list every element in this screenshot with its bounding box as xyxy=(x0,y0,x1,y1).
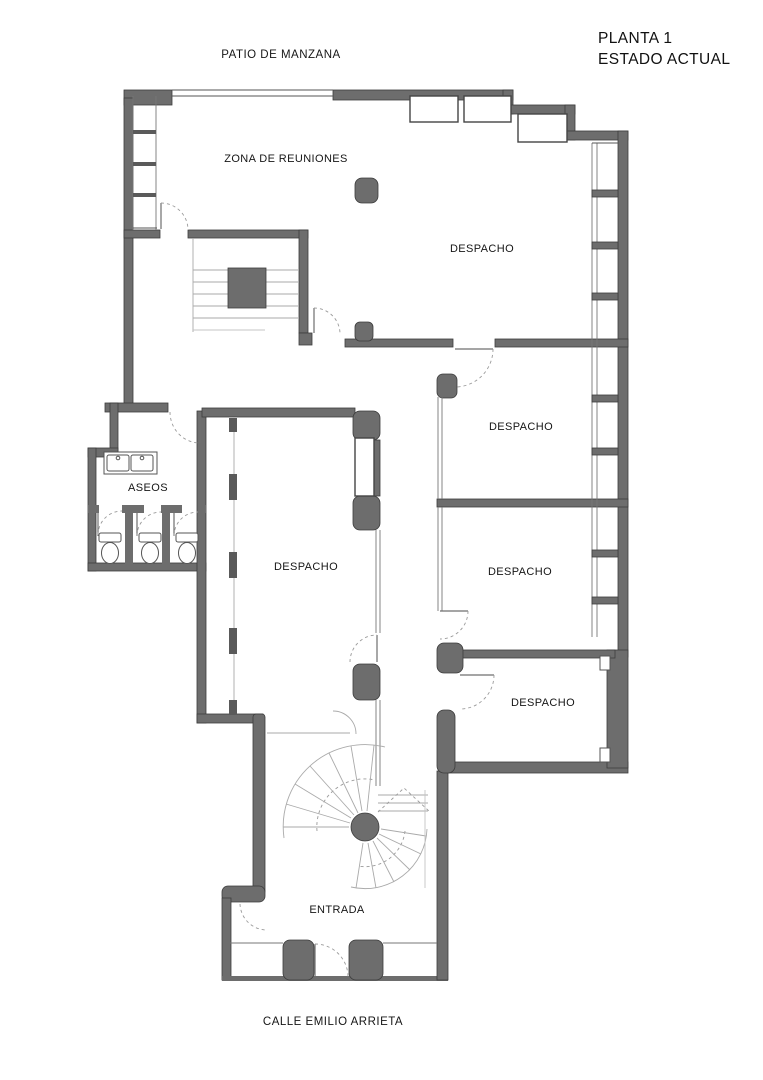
door-arc-despacho-sureste xyxy=(460,675,494,709)
floor-plan-drawing xyxy=(0,0,763,1080)
title-block: PLANTA 1 ESTADO ACTUAL xyxy=(598,28,730,70)
door-arc-despacho-este-1 xyxy=(455,349,493,387)
title-line-2: ESTADO ACTUAL xyxy=(598,49,730,70)
spiral-stair-column xyxy=(351,813,379,841)
room-label-entrada: ENTRADA xyxy=(309,904,364,916)
door-arc-despacho-este-2 xyxy=(440,611,468,639)
room-label-despacho-norte: DESPACHO xyxy=(450,243,514,255)
floor-plan-canvas: PATIO DE MANZANA CALLE EMILIO ARRIETA PL… xyxy=(0,0,763,1080)
toilet xyxy=(99,533,121,564)
title-line-1: PLANTA 1 xyxy=(598,28,730,49)
door-arc-aseos xyxy=(170,412,200,443)
room-label-zona-de-reuniones: ZONA DE REUNIONES xyxy=(224,153,348,165)
straight-stair xyxy=(193,238,298,332)
door-arc-entrada-side xyxy=(240,904,266,930)
shaft-box xyxy=(355,438,374,496)
doors xyxy=(98,203,494,977)
faucet xyxy=(116,456,120,460)
toilet xyxy=(139,533,161,564)
spiral-stair xyxy=(267,711,430,889)
door-arc-despacho-central xyxy=(350,635,377,662)
label-patio-de-manzana: PATIO DE MANZANA xyxy=(221,49,340,61)
room-label-aseos: ASEOS xyxy=(128,482,168,494)
stair-core xyxy=(228,268,266,308)
door-arc-stair-hall xyxy=(161,203,188,230)
room-label-despacho-central: DESPACHO xyxy=(274,561,338,573)
door-arc-entrada xyxy=(315,944,348,977)
toilet xyxy=(176,533,198,564)
room-label-despacho-este-1: DESPACHO xyxy=(489,421,553,433)
door-arc-hall-south xyxy=(314,308,340,333)
room-label-despacho-este-2: DESPACHO xyxy=(488,566,552,578)
label-calle-emilio-arrieta: CALLE EMILIO ARRIETA xyxy=(263,1016,403,1028)
wall-piers xyxy=(283,322,463,980)
faucet xyxy=(140,456,144,460)
column xyxy=(355,178,378,203)
room-label-despacho-sureste: DESPACHO xyxy=(511,697,575,709)
